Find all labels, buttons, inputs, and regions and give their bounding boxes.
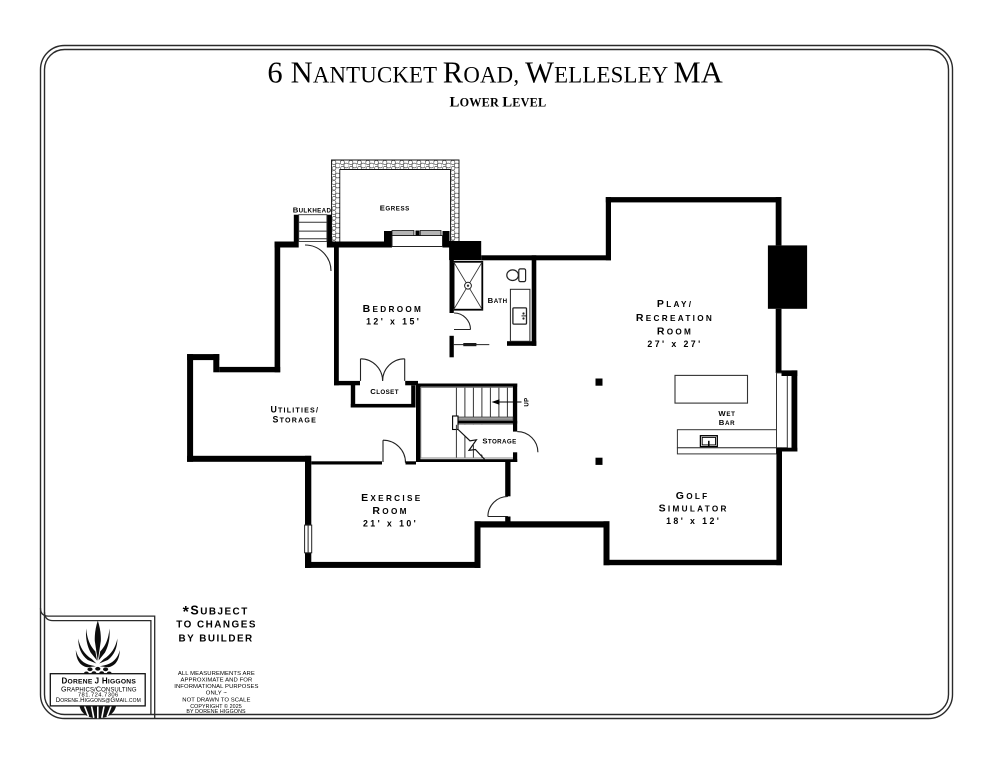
svg-text:STORAGE: STORAGE bbox=[273, 415, 318, 425]
svg-text:RECREATION: RECREATION bbox=[636, 312, 714, 324]
svg-text:CLOSET: CLOSET bbox=[370, 387, 399, 396]
svg-text:BEDROOM: BEDROOM bbox=[363, 303, 424, 315]
svg-text:NOT DRAWN TO SCALE: NOT DRAWN TO SCALE bbox=[182, 698, 250, 704]
svg-text:ONLY ~: ONLY ~ bbox=[206, 691, 228, 697]
svg-text:BY BUILDER: BY BUILDER bbox=[179, 634, 254, 645]
svg-text:APPROXIMATE AND FOR: APPROXIMATE AND FOR bbox=[180, 678, 252, 684]
svg-text:ROOM: ROOM bbox=[657, 325, 693, 337]
svg-text:UTILITIES/: UTILITIES/ bbox=[270, 405, 319, 415]
svg-text:12' x 15': 12' x 15' bbox=[366, 317, 421, 327]
svg-text:INFORMATIONAL PURPOSES: INFORMATIONAL PURPOSES bbox=[174, 684, 258, 690]
svg-text:UP: UP bbox=[525, 397, 531, 406]
svg-text:LOWER LEVEL: LOWER LEVEL bbox=[449, 94, 546, 110]
svg-text:GOLF: GOLF bbox=[676, 490, 710, 502]
svg-text:BATH: BATH bbox=[488, 296, 508, 305]
svg-text:WET: WET bbox=[718, 409, 735, 418]
svg-text:STORAGE: STORAGE bbox=[482, 437, 516, 446]
svg-text:21' x 10': 21' x 10' bbox=[363, 519, 418, 529]
svg-text:18' x 12': 18' x 12' bbox=[666, 516, 721, 526]
svg-text:BY DORENE HIGGONS: BY DORENE HIGGONS bbox=[186, 709, 246, 715]
svg-text:BULKHEAD: BULKHEAD bbox=[293, 205, 332, 214]
svg-text:27' x 27': 27' x 27' bbox=[647, 339, 702, 349]
svg-text:EGRESS: EGRESS bbox=[380, 203, 410, 212]
svg-text:SIMULATOR: SIMULATOR bbox=[659, 502, 729, 514]
svg-text:ROOM: ROOM bbox=[372, 505, 408, 517]
svg-text:DORENE.HIGGONS@GMAIL.COM: DORENE.HIGGONS@GMAIL.COM bbox=[56, 697, 141, 704]
svg-text:EXERCISE: EXERCISE bbox=[361, 492, 422, 504]
svg-text:PLAY/: PLAY/ bbox=[657, 298, 693, 310]
svg-text:TO CHANGES: TO CHANGES bbox=[176, 620, 257, 631]
svg-text:BAR: BAR bbox=[719, 418, 736, 427]
svg-text:ALL MEASUREMENTS ARE: ALL MEASUREMENTS ARE bbox=[178, 671, 255, 677]
